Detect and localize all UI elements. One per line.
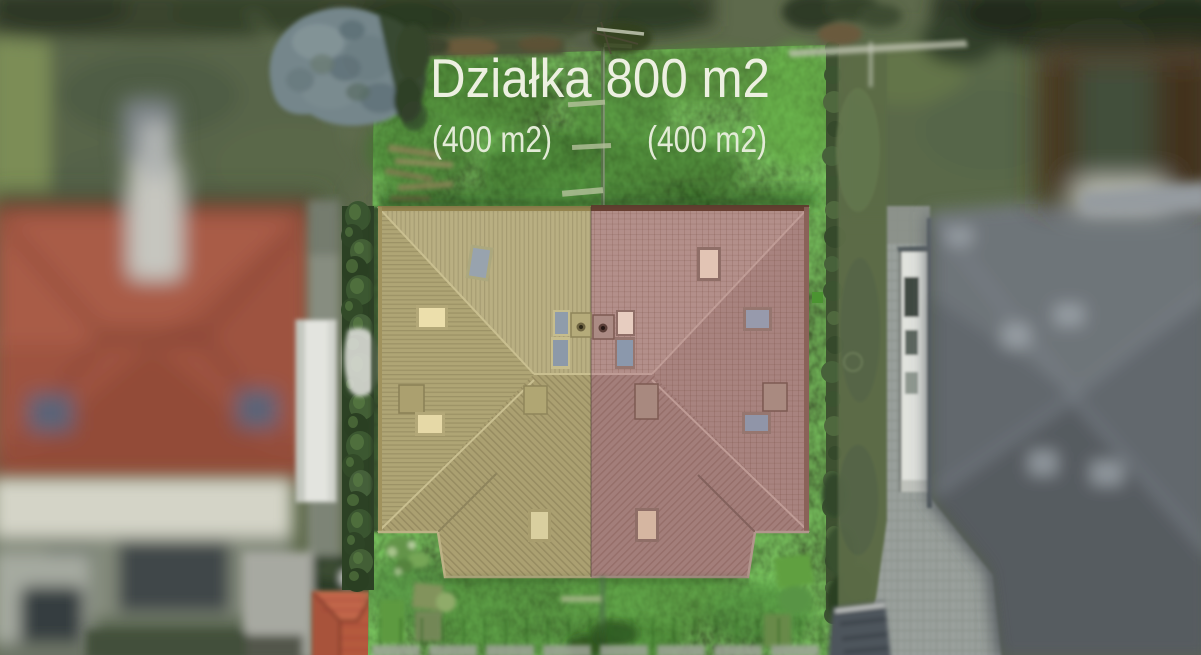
svg-text:(400 m2): (400 m2) [647,119,767,160]
svg-text:(400 m2): (400 m2) [432,119,552,160]
svg-text:Działka 800 m2: Działka 800 m2 [430,47,770,109]
